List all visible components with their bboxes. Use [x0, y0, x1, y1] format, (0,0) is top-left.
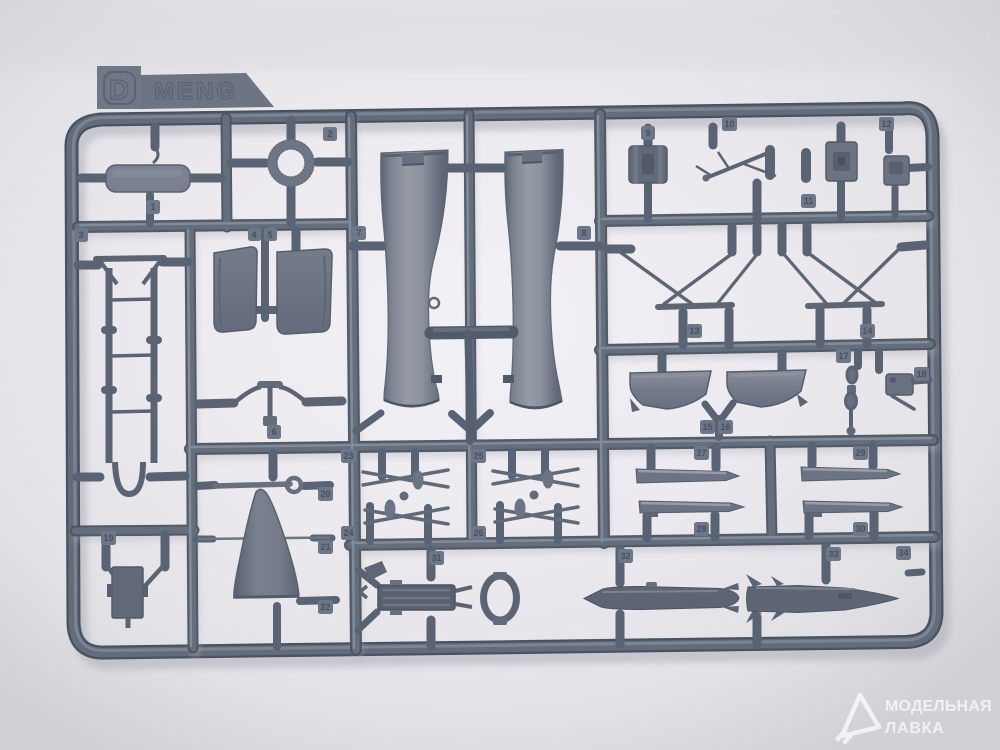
svg-text:MENG: MENG — [154, 78, 238, 105]
svg-text:29: 29 — [855, 448, 865, 458]
svg-text:31: 31 — [431, 553, 441, 563]
svg-text:20: 20 — [320, 489, 330, 499]
svg-text:32: 32 — [620, 551, 630, 561]
svg-text:18: 18 — [916, 369, 926, 379]
svg-text:D: D — [109, 74, 129, 105]
svg-text:8: 8 — [581, 228, 586, 238]
svg-text:13: 13 — [689, 326, 699, 336]
svg-text:33: 33 — [828, 549, 838, 559]
svg-text:24: 24 — [343, 528, 353, 538]
svg-text:11: 11 — [804, 196, 814, 206]
svg-text:4: 4 — [251, 230, 256, 240]
svg-text:12: 12 — [881, 119, 891, 129]
svg-text:2: 2 — [327, 129, 332, 139]
svg-text:15: 15 — [702, 422, 712, 432]
svg-text:30: 30 — [855, 524, 865, 534]
svg-text:17: 17 — [838, 351, 848, 361]
svg-text:21: 21 — [320, 542, 330, 552]
svg-text:19: 19 — [103, 533, 113, 543]
svg-text:22: 22 — [320, 602, 330, 612]
svg-text:10: 10 — [724, 119, 734, 129]
svg-text:25: 25 — [473, 451, 483, 461]
svg-text:1: 1 — [150, 202, 155, 212]
svg-text:3: 3 — [78, 230, 83, 240]
svg-text:27: 27 — [696, 448, 706, 458]
svg-text:9: 9 — [645, 128, 650, 138]
svg-text:5: 5 — [267, 230, 272, 240]
svg-text:26: 26 — [473, 528, 483, 538]
svg-text:23: 23 — [343, 451, 353, 461]
svg-text:28: 28 — [696, 524, 706, 534]
svg-text:7: 7 — [356, 228, 361, 238]
svg-text:6: 6 — [271, 427, 276, 437]
svg-text:16: 16 — [720, 422, 730, 432]
svg-text:14: 14 — [862, 326, 872, 336]
svg-text:МОДЕЛЬНАЯ: МОДЕЛЬНАЯ — [885, 698, 992, 715]
svg-text:ЛАВКА: ЛАВКА — [885, 720, 945, 737]
svg-text:34: 34 — [898, 548, 908, 558]
